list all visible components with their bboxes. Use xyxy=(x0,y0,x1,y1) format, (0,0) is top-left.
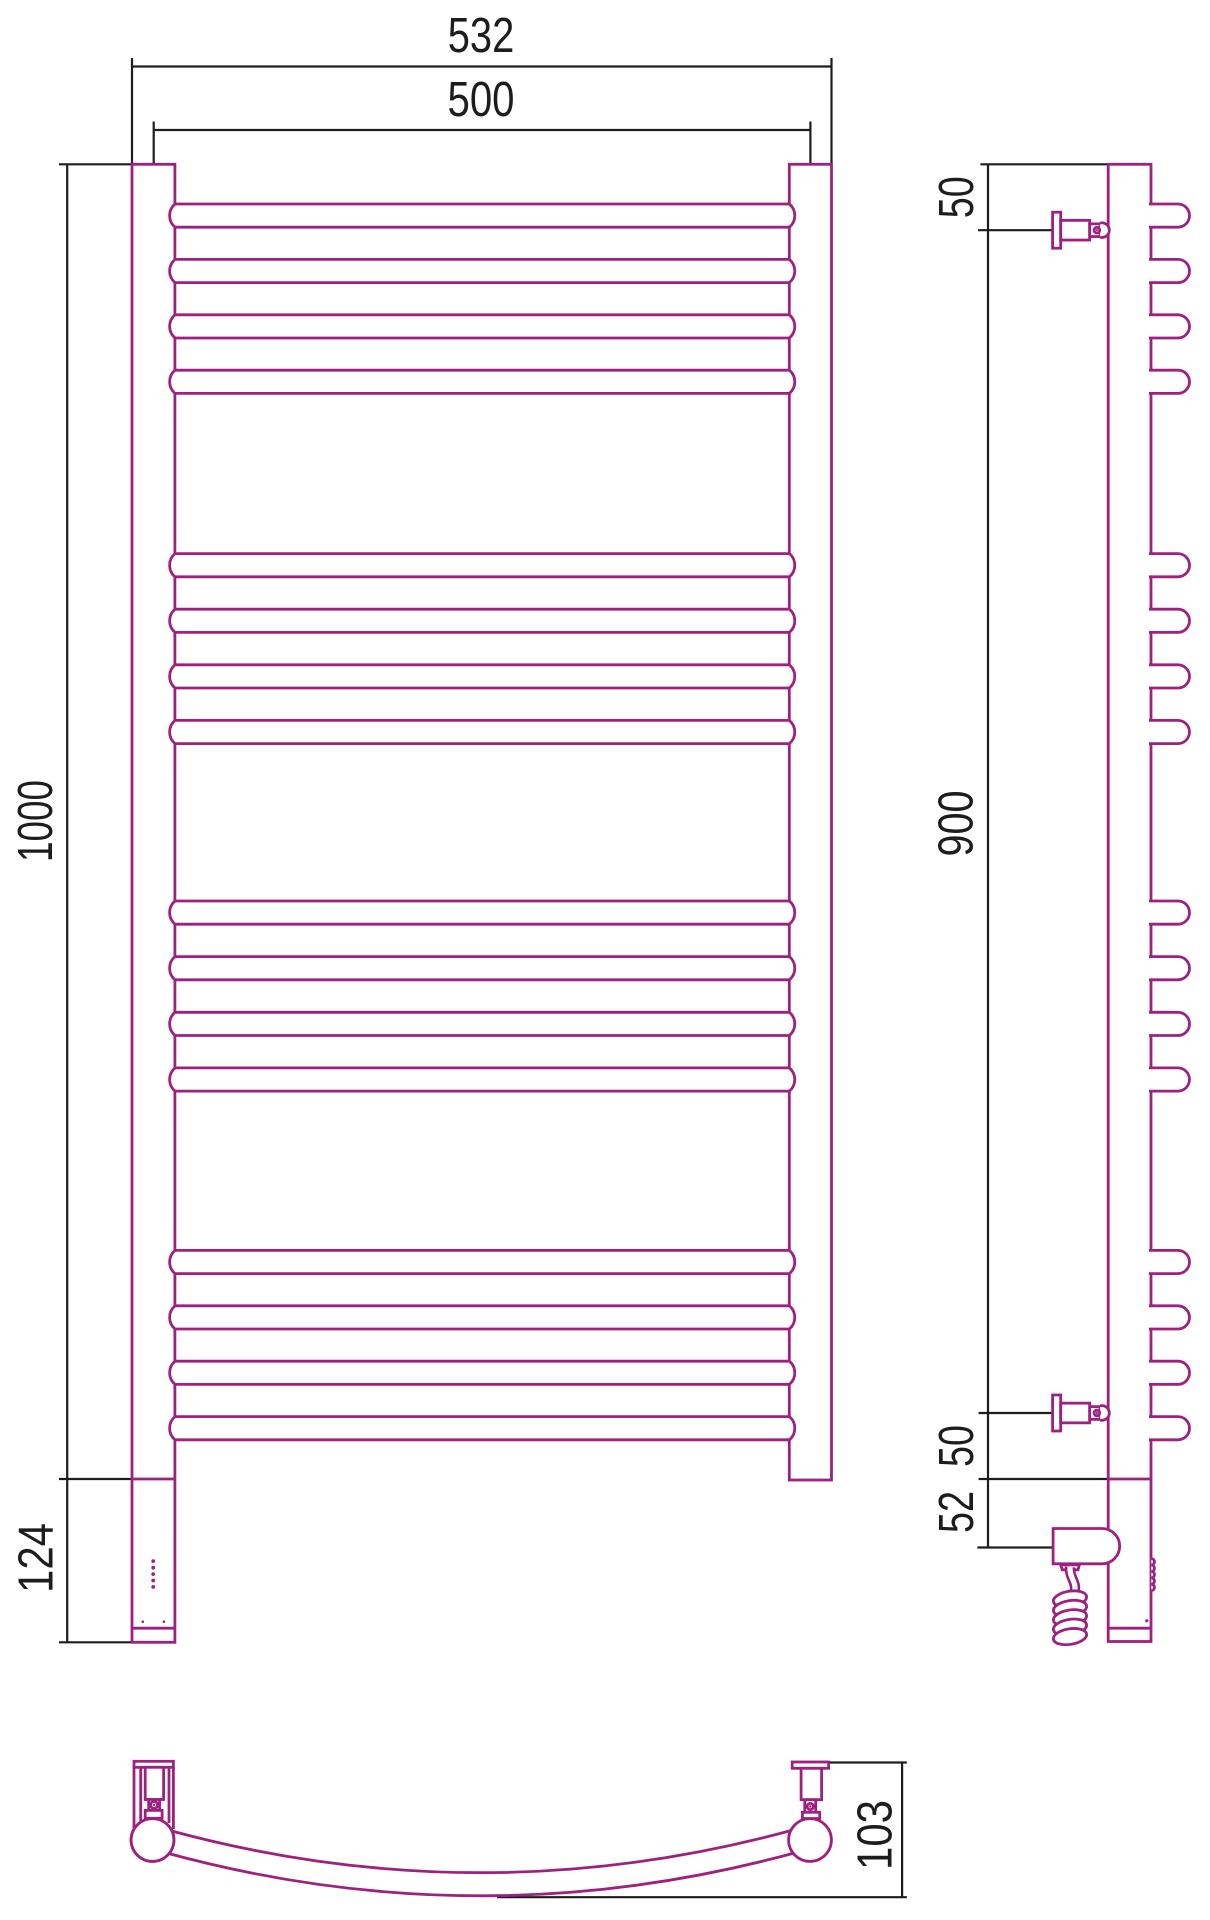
svg-text:124: 124 xyxy=(10,1523,64,1593)
svg-text:900: 900 xyxy=(929,791,983,857)
svg-text:50: 50 xyxy=(930,176,984,218)
svg-text:500: 500 xyxy=(448,73,515,127)
svg-text:50: 50 xyxy=(930,1425,984,1467)
svg-text:52: 52 xyxy=(930,1491,984,1533)
svg-text:103: 103 xyxy=(849,1800,903,1870)
svg-text:532: 532 xyxy=(448,9,515,63)
svg-text:1000: 1000 xyxy=(9,780,63,862)
